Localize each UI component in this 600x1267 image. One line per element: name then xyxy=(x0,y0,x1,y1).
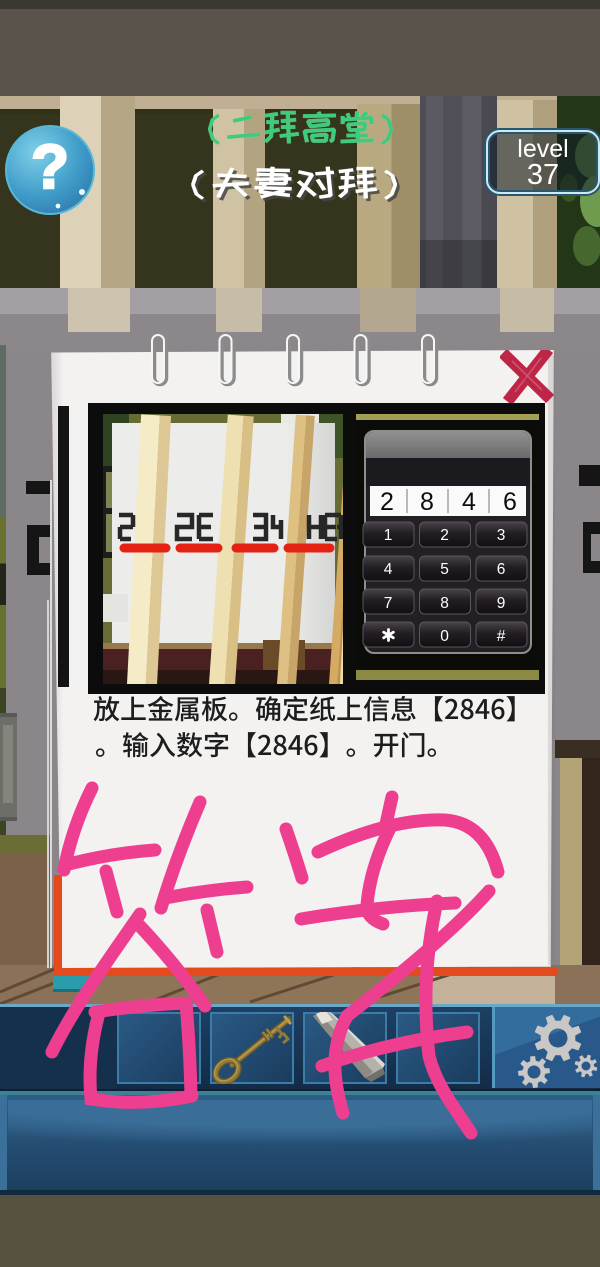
svg-text:0: 0 xyxy=(440,628,449,645)
svg-text:#: # xyxy=(497,628,506,645)
svg-text:7: 7 xyxy=(384,595,393,612)
svg-text:8: 8 xyxy=(440,595,449,612)
svg-text:5: 5 xyxy=(440,561,449,578)
svg-text:4: 4 xyxy=(384,561,393,578)
svg-text:9: 9 xyxy=(497,595,506,612)
svg-text:3: 3 xyxy=(497,527,506,544)
svg-text:6: 6 xyxy=(497,561,506,578)
svg-text:2: 2 xyxy=(440,527,449,544)
svg-text:1: 1 xyxy=(384,527,393,544)
